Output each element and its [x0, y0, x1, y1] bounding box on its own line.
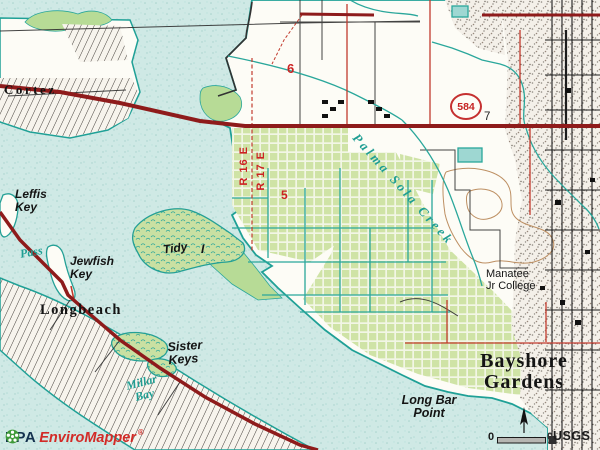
epa-enviromapper-logo: EPA EnviroMapper ®: [5, 429, 145, 446]
highway-shield-number: 584: [457, 101, 475, 113]
enviromapper-wordmark: EnviroMapper: [39, 430, 136, 446]
highway-shield-584: 584: [450, 93, 482, 120]
epa-logo-icon: [5, 429, 20, 444]
topo-map-canvas[interactable]: Cortez 6 584 7 R 16 E R 17 E 5 Palma Sol…: [0, 0, 600, 450]
scale-left-label: 0: [488, 431, 494, 443]
usgs-attribution: USGS: [553, 429, 590, 443]
registered-mark: ®: [138, 428, 144, 437]
map-artwork: [0, 0, 600, 450]
